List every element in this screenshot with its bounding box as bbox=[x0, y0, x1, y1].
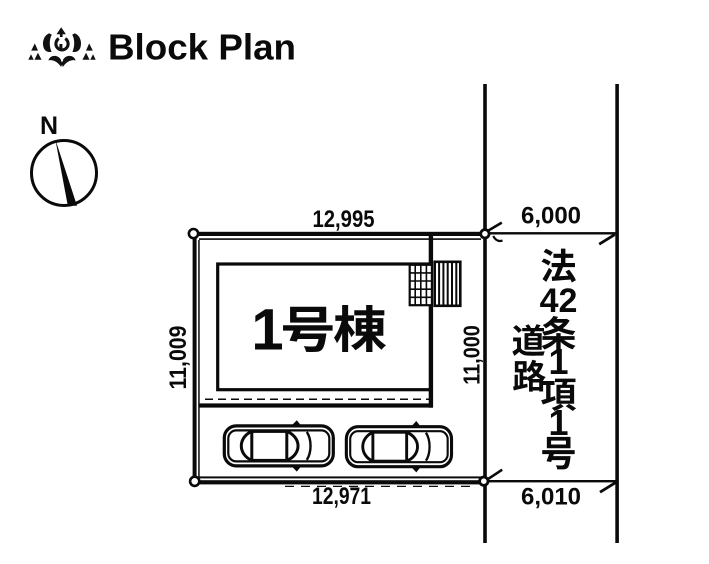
svg-text:12,971: 12,971 bbox=[312, 483, 371, 510]
svg-text:6,000: 6,000 bbox=[521, 202, 581, 229]
svg-text:1: 1 bbox=[548, 341, 568, 382]
svg-text:11,009: 11,009 bbox=[165, 326, 192, 390]
svg-text:11,000: 11,000 bbox=[458, 325, 484, 385]
svg-text:N: N bbox=[40, 112, 58, 140]
svg-text:1: 1 bbox=[251, 298, 283, 363]
svg-text:1: 1 bbox=[548, 402, 568, 443]
svg-text:Block Plan: Block Plan bbox=[108, 27, 296, 68]
svg-text:42: 42 bbox=[540, 282, 578, 320]
svg-text:6,010: 6,010 bbox=[521, 483, 581, 510]
svg-text:12,995: 12,995 bbox=[313, 206, 375, 233]
